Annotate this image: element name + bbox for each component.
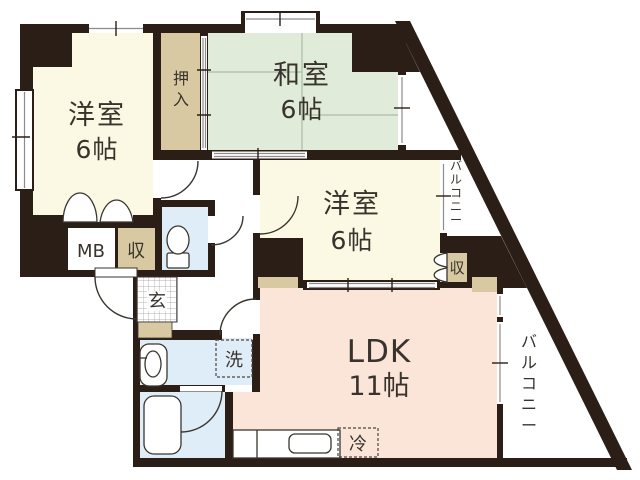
fridge-label: 冷 <box>349 434 367 455</box>
balcony-corner-block <box>472 277 497 292</box>
storage-western2-label: 収 <box>449 259 464 277</box>
western1-door-arc <box>161 161 198 198</box>
entrance-label: 玄 <box>148 291 166 312</box>
entry-door-arc <box>95 277 137 319</box>
western2-size: 6帖 <box>331 226 374 255</box>
storage-hall-label: 収 <box>127 241 145 262</box>
bathtub <box>144 396 181 454</box>
washer-label: 洗 <box>225 350 243 371</box>
toilet-tank <box>167 253 189 268</box>
floorplan: 洋室 6帖 和室 6帖 洋室 6帖 LDK 11帖 押入 MB 収 収 玄 洗 … <box>0 0 640 480</box>
entry-door-leaf <box>95 268 137 277</box>
ldk-size: 11帖 <box>348 371 409 402</box>
hall-counter <box>258 277 298 288</box>
japanese-name: 和室 <box>273 60 331 91</box>
japanese-size: 6帖 <box>281 95 324 124</box>
kitchen-sink <box>289 434 331 453</box>
balcony-right-label: バルコニー <box>521 332 537 435</box>
ldk-door-arc <box>220 299 256 335</box>
washbasin-bowl <box>145 351 161 377</box>
balcony-upper-label: バルコニー <box>450 159 462 227</box>
western1-name: 洋室 <box>68 100 126 131</box>
western2-name: 洋室 <box>323 189 381 220</box>
floorplan-svg: 洋室 6帖 和室 6帖 洋室 6帖 LDK 11帖 押入 MB 収 収 玄 洗 … <box>0 0 640 480</box>
toilet-door-arc <box>211 216 243 245</box>
mb-label: MB <box>77 241 105 262</box>
genkan-step <box>138 322 172 338</box>
toilet-bowl <box>167 226 189 254</box>
western1-size: 6帖 <box>76 135 119 164</box>
ldk-name: LDK <box>347 334 411 370</box>
